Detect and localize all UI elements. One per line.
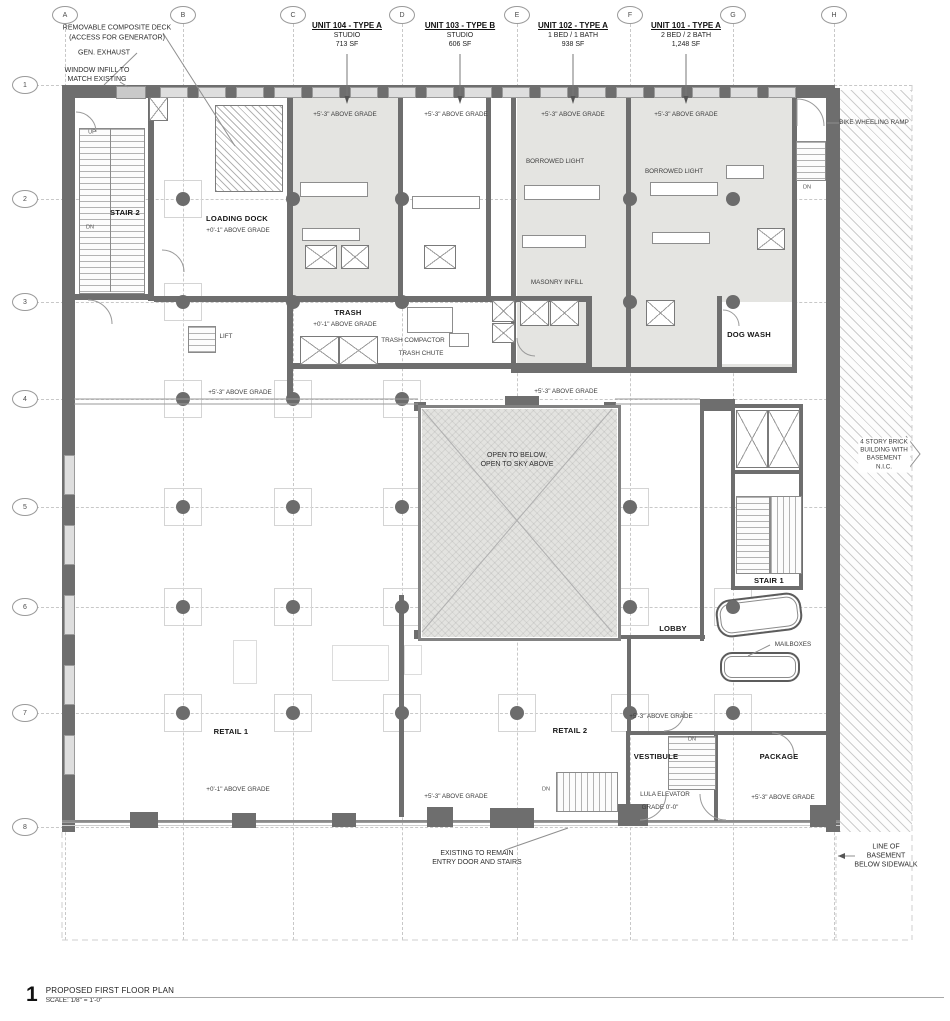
closet [520,300,549,326]
structural-column [286,706,300,720]
dog-wash-west-wall [717,296,722,371]
core-mid-wall [731,470,803,474]
grade-grid4-mid: +5'-3" ABOVE GRADE [534,388,597,396]
stair2-dn: DN [86,224,94,231]
unit-header-103: UNIT 103 - TYPE B STUDIO 606 SF [395,21,525,49]
gen-exhaust-vent [149,97,168,121]
mailbox-kiosk [720,652,800,682]
kitchen-island [524,185,600,200]
room-vestibule: VESTIBULE [634,752,678,762]
door-arc [88,300,112,324]
unit-101-name: UNIT 101 - TYPE A [621,21,751,31]
floor-plan-sheet: ABCDEFGH12345678 [0,0,950,1021]
structural-column [623,500,637,514]
window [64,525,75,565]
kitchen-counter [302,228,360,241]
trash-east-wall [586,296,592,369]
grid-row-bubble: 8 [12,818,38,836]
vestibule-stair [668,736,716,790]
structural-column [286,392,300,406]
lobby-south-wall [615,635,705,639]
kitchen-island [300,182,368,197]
closet [424,245,456,269]
structural-column [286,500,300,514]
lula-grade: GRADE 0'-0" [642,804,679,812]
unit-102-fill [517,98,627,370]
core-south-wall [731,586,803,590]
grid-column-bubble: H [821,6,847,24]
grid-row-bubble: 3 [12,293,38,311]
vestibule-west-wall [626,733,630,821]
kitchen-counter [652,232,710,244]
structural-column [726,600,740,614]
title-block: 1 PROPOSED FIRST FLOOR PLAN SCALE: 1/8" … [26,986,174,1005]
note-window-infill: WINDOW INFILL TO MATCH EXISTING [65,66,130,84]
grade-package: +5'-3" ABOVE GRADE [751,794,814,802]
elevator-shaft [736,410,768,468]
window [160,87,188,98]
structural-column [395,192,409,206]
grid-row-bubble: 7 [12,704,38,722]
room-package: PACKAGE [760,752,799,762]
grid-row-bubble: 5 [12,498,38,516]
note-gen-exhaust: GEN. EXHAUST [78,48,130,57]
window-infill-block [116,86,146,99]
structural-column [176,192,190,206]
window [350,87,378,98]
retail-fixture [233,640,257,684]
unit101-east-wall [792,85,797,373]
unit-header-101: UNIT 101 - TYPE A 2 BED / 2 BATH 1,248 S… [621,21,751,49]
shaft [492,323,515,343]
structural-column [176,500,190,514]
grade-loading-dock: +0'-1" ABOVE GRADE [206,227,269,235]
drawing-scale: SCALE: 1/8" = 1'-0" [46,997,174,1004]
unit-101-area: 1,248 SF [621,40,751,49]
unit-header-102: UNIT 102 - TYPE A 1 BED / 1 BATH 938 SF [508,21,638,49]
retail2-stair-dn: DN [542,786,550,793]
room-trash-compactor: TRASH COMPACTOR [381,337,444,345]
window [274,87,302,98]
unit-102-area: 938 SF [508,40,638,49]
structural-column [176,706,190,720]
window [426,87,454,98]
structural-column [395,600,409,614]
retail-fixture [332,645,389,681]
window [64,455,75,495]
retail-fixture [404,645,422,675]
stair1-flight-a [736,496,770,574]
window [198,87,226,98]
unit-102-desc: 1 BED / 1 BATH [508,31,638,40]
unit-103-area: 606 SF [395,40,525,49]
loading-dock-east-wall [287,85,293,400]
structural-column [726,295,740,309]
door-arc [162,250,184,272]
east-wall [826,88,840,832]
window [578,87,606,98]
trash-compactor-body [407,307,453,333]
room-trash: TRASH [334,308,361,318]
grid-row-bubble: 1 [12,76,38,94]
unit-103-name: UNIT 103 - TYPE B [395,21,525,31]
window [236,87,264,98]
trash-bin [300,336,339,365]
note-existing-entry: EXISTING TO REMAIN ENTRY DOOR AND STAIRS [432,849,521,867]
note-open-to-below: OPEN TO BELOW, OPEN TO SKY ABOVE [481,451,554,469]
closet [646,300,675,326]
closet [305,245,337,269]
window [64,665,75,705]
window [464,87,492,98]
note-mailboxes: MAILBOXES [775,641,811,649]
grade-grid4-left: +5'-3" ABOVE GRADE [208,389,271,397]
structural-column [286,600,300,614]
pier [130,812,158,828]
grid-row-bubble: 2 [12,190,38,208]
vestibule-north-wall [626,731,828,735]
kitchen-counter [522,235,586,248]
core-west-wall [731,404,735,590]
window [692,87,720,98]
note-brick-building: 4 STORY BRICK BUILDING WITH BASEMENT N.I… [858,438,910,473]
structural-column [623,192,637,206]
courtyard-open-to-sky [418,405,621,641]
elevator-shaft [768,410,800,468]
note-borrowed-light-1: BORROWED LIGHT [526,158,584,166]
grade-retail1: +0'-1" ABOVE GRADE [206,786,269,794]
structural-column [176,600,190,614]
grade-unit-101: +5'-3" ABOVE GRADE [654,111,717,119]
vestibule-stair-dn: DN [688,736,696,743]
removable-composite-deck [215,105,283,192]
grid-column-bubble: A [52,6,78,24]
window [730,87,758,98]
structural-column [726,192,740,206]
grid-row-bubble: 6 [12,598,38,616]
grid-column-bubble: B [170,6,196,24]
trash-chute-body [449,333,469,347]
window [312,87,340,98]
room-lula-elevator: LULA ELEVATOR [640,791,690,799]
drawing-title: PROPOSED FIRST FLOOR PLAN [46,986,174,995]
structural-column [286,192,300,206]
closet [341,245,369,269]
structural-column [395,392,409,406]
pier [332,813,356,827]
structural-column [395,295,409,309]
structural-column [176,295,190,309]
room-trash-chute: TRASH CHUTE [399,350,444,358]
window [654,87,682,98]
bath-counter [726,165,764,179]
structural-column [395,500,409,514]
stair2-south-wall [62,294,154,300]
room-loading-dock: LOADING DOCK [206,214,268,224]
note-removable-deck: REMOVABLE COMPOSITE DECK [63,23,171,32]
kitchen-counter [412,196,480,209]
kitchen-island [650,182,718,196]
room-retail2: RETAIL 2 [553,726,588,736]
unit-104-area: 713 SF [282,40,412,49]
room-retail1: RETAIL 1 [214,727,249,737]
unit-104-fill [293,98,399,302]
pier [490,808,534,828]
structural-column [176,392,190,406]
units-south-wall [511,367,797,373]
unit-102-name: UNIT 102 - TYPE A [508,21,638,31]
grid-row-bubble: 4 [12,390,38,408]
note-masonry-infill: MASONRY INFILL [531,279,583,287]
grid-line-horizontal [36,827,912,828]
pier [232,813,256,828]
leader-line [505,828,568,850]
room-stair2: STAIR 2 [110,208,140,218]
title-block-rule [46,997,944,998]
closet [757,228,785,250]
window [768,87,796,98]
grade-unit-102: +5'-3" ABOVE GRADE [541,111,604,119]
leader-arrowhead [838,853,845,859]
unit102-101-wall [626,85,631,373]
window [616,87,644,98]
trash-bin [339,336,378,365]
window [502,87,530,98]
room-lobby: LOBBY [659,624,687,634]
drawing-number: 1 [26,986,38,1005]
bike-stair-dn: DN [803,184,811,191]
closet [550,300,579,326]
lift-stair [188,326,216,353]
shaft [492,300,515,322]
structural-column [286,295,300,309]
lobby-nw-wall [700,399,735,411]
structural-column [726,706,740,720]
bike-ramp-stair [796,141,826,181]
room-lift: LIFT [220,333,233,341]
unit-101-desc: 2 BED / 2 BATH [621,31,751,40]
room-stair1: STAIR 1 [754,576,784,586]
window [540,87,568,98]
structural-column [395,706,409,720]
unit-104-desc: STUDIO [282,31,412,40]
room-dog-wash: DOG WASH [727,330,771,340]
grid-line-vertical [183,24,184,940]
pier [427,807,453,827]
grade-unit-104: +5'-3" ABOVE GRADE [313,111,376,119]
stair1-flight-b [770,496,802,574]
note-basement-line: LINE OF BASEMENT BELOW SIDEWALK [854,842,918,869]
note-removable-deck-sub: (ACCESS FOR GENERATOR) [69,33,165,42]
structural-column [510,706,524,720]
window [388,87,416,98]
door-arc [700,794,726,820]
grade-retail2: +5'-3" ABOVE GRADE [424,793,487,801]
pier [810,805,836,827]
grade-grid7: +5'-3" ABOVE GRADE [629,713,692,721]
structural-column [623,295,637,309]
window [64,735,75,775]
grade-unit-103: +5'-3" ABOVE GRADE [424,111,487,119]
unit-header-104: UNIT 104 - TYPE A STUDIO 713 SF [282,21,412,49]
unit-103-desc: STUDIO [395,31,525,40]
window [64,595,75,635]
existing-entry-stair [556,772,618,812]
note-borrowed-light-2: BORROWED LIGHT [645,168,703,176]
note-bike-ramp: BIKE WHEELING RAMP [839,119,909,127]
grade-trash: +0'-1" ABOVE GRADE [313,321,376,329]
door-arc [797,99,824,126]
structural-column [623,600,637,614]
core-north-wall [731,404,803,408]
stair2-up: UP [88,129,96,136]
lobby-west-wall [700,399,704,641]
unit-104-name: UNIT 104 - TYPE A [282,21,412,31]
